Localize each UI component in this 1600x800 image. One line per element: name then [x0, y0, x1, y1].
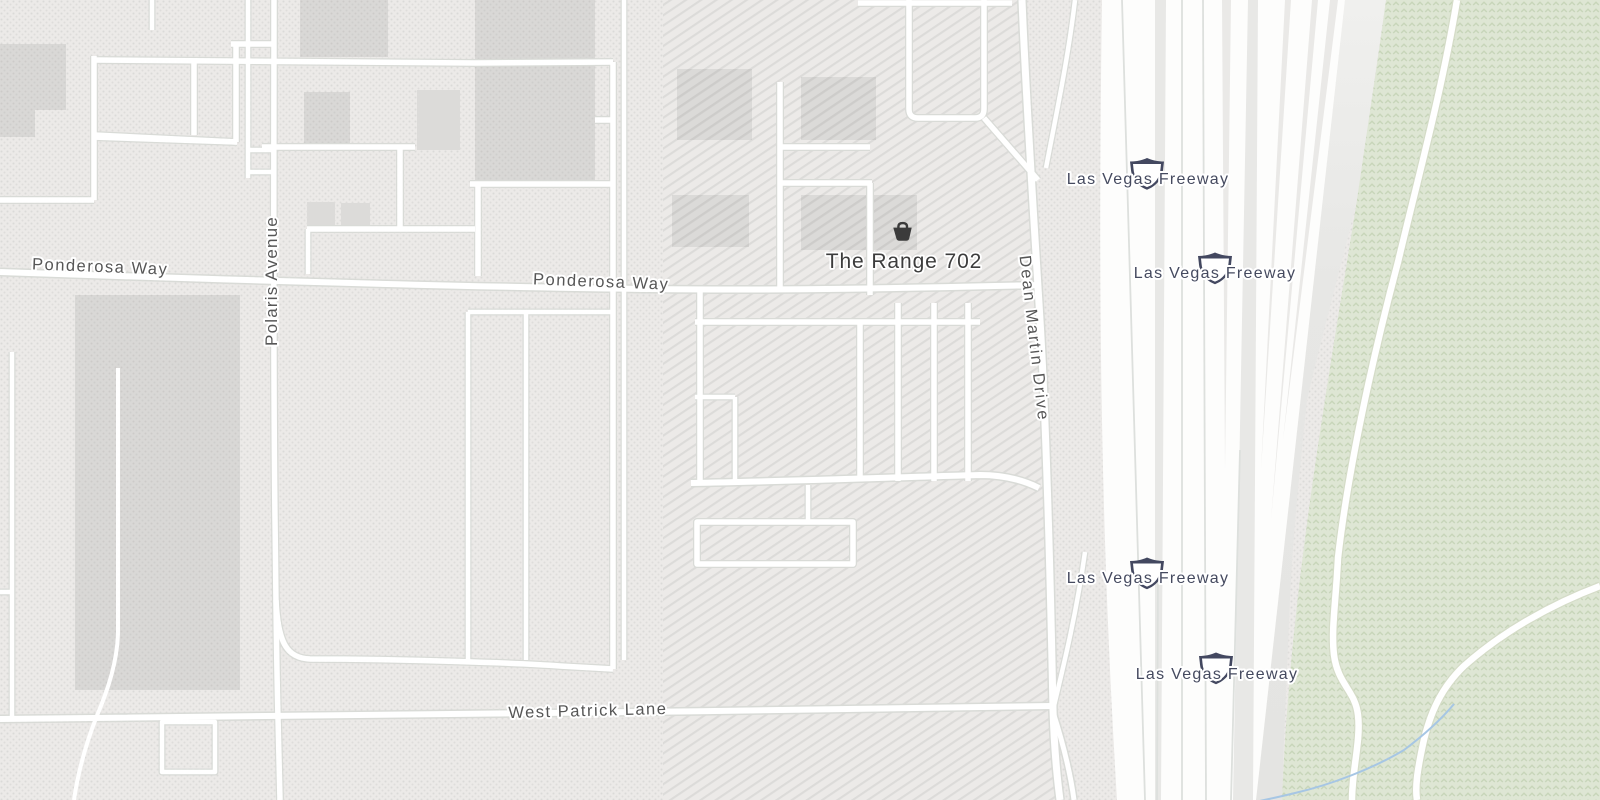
svg-text:Las Vegas Freeway: Las Vegas Freeway: [1067, 171, 1230, 188]
svg-text:Las Vegas Freeway: Las Vegas Freeway: [1136, 666, 1299, 683]
svg-text:Polaris Avenue: Polaris Avenue: [262, 216, 281, 346]
svg-text:Las Vegas Freeway: Las Vegas Freeway: [1134, 265, 1297, 282]
svg-text:Las Vegas Freeway: Las Vegas Freeway: [1067, 570, 1230, 587]
svg-text:The Range 702: The Range 702: [826, 250, 982, 273]
